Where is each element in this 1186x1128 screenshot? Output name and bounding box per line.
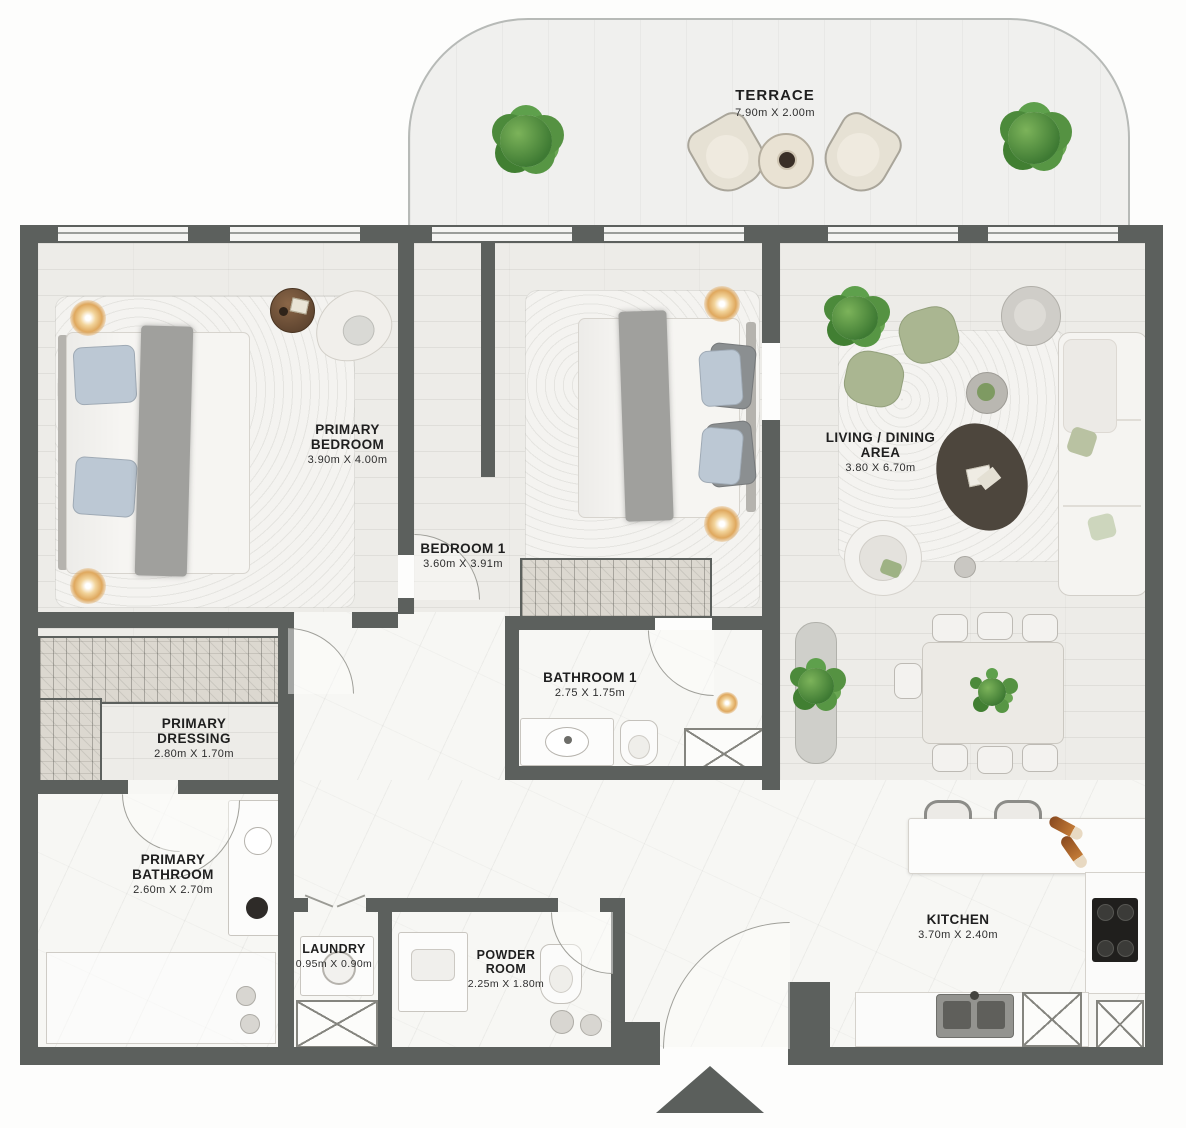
bathroom1-accessory-icon <box>716 692 738 714</box>
primary-bathroom-stool-1 <box>236 986 256 1006</box>
wall-bathroom1-top-right <box>712 616 762 630</box>
kitchen-bar-stool <box>994 800 1042 819</box>
wall-primary-bottom-right <box>352 612 398 628</box>
kitchen-appliance-box <box>1096 1000 1144 1049</box>
bedroom1-lamp-top-icon <box>704 286 740 322</box>
primary-dressing-dims: 2.80m X 1.70m <box>138 748 250 760</box>
window <box>58 225 188 243</box>
wall-primary-bottom-left <box>38 612 288 628</box>
living-dining-dims: 3.80 X 6.70m <box>818 462 943 474</box>
living-plant-icon <box>832 296 878 340</box>
kitchen-bar-counter <box>908 818 1147 874</box>
window <box>604 225 744 243</box>
primary-bed-pillow-bottom <box>72 456 138 518</box>
bathroom-1-dims: 2.75 X 1.75m <box>525 687 655 699</box>
bedroom1-lamp-bottom-icon <box>704 506 740 542</box>
living-armchair <box>844 520 922 596</box>
wall-dressing-bottom-left <box>38 780 128 794</box>
wall-right <box>1145 225 1163 1065</box>
bathroom1-toilet <box>620 720 658 766</box>
primary-bed-runner <box>135 325 194 576</box>
terrace-plant-right-icon <box>1008 112 1060 164</box>
primary-lamp-top-icon <box>70 300 106 336</box>
wall-bathroom1-bottom <box>505 766 762 780</box>
primary-bathroom-name: PRIMARY BATHROOM <box>114 852 232 882</box>
dining-chair <box>932 614 968 642</box>
kitchen-appliance-box <box>1022 992 1082 1047</box>
kitchen-sink <box>936 994 1014 1038</box>
wall-primary-right-upper <box>398 243 414 555</box>
bedroom1-wardrobe <box>520 558 712 618</box>
wall-primary-right-lower <box>398 598 414 614</box>
dining-chair <box>977 612 1013 640</box>
dining-chair <box>1022 614 1058 642</box>
bedroom1-bed-runner <box>618 310 673 522</box>
floor-corridor <box>294 612 505 782</box>
wall-bottom-right <box>788 1047 1163 1065</box>
kitchen-hob <box>1092 898 1138 962</box>
powder-rug-1 <box>550 1010 574 1034</box>
dining-chair <box>1022 744 1058 772</box>
dressing-wardrobe-left <box>38 698 102 788</box>
entrance-arrow-icon <box>656 1066 764 1113</box>
powder-room-name: POWDER ROOM <box>456 948 556 976</box>
wall-living-left-lower <box>762 420 780 790</box>
wall-living-left-upper <box>762 243 780 343</box>
room-label-primary-bathroom: PRIMARY BATHROOM 2.60m X 2.70m <box>114 852 232 896</box>
room-label-bedroom-1: BEDROOM 1 3.60m X 3.91m <box>403 541 523 570</box>
living-sofa <box>1058 332 1148 596</box>
bedroom1-pillow-bottom <box>698 426 745 485</box>
kitchen-dims: 3.70m X 2.40m <box>898 929 1018 941</box>
terrace-plant-left-icon <box>500 115 552 167</box>
room-label-living-dining: LIVING / DINING AREA 3.80 X 6.70m <box>818 430 943 474</box>
primary-dressing-name: PRIMARY DRESSING <box>138 716 250 746</box>
primary-bedroom-name: PRIMARY BEDROOM <box>295 422 400 452</box>
primary-side-table <box>270 288 315 333</box>
wall-bathroom1-top-left <box>505 616 655 630</box>
laundry-name: LAUNDRY <box>286 942 382 956</box>
window <box>230 225 360 243</box>
living-round-chair <box>1001 286 1061 346</box>
kitchen-bar-stool <box>924 800 972 819</box>
wall-laundry-top-corner <box>292 898 308 912</box>
living-side-table <box>966 372 1008 414</box>
wall-powder-right <box>611 898 625 1047</box>
wall-bathroom1-left <box>505 616 519 780</box>
laundry-dims: 0.95m X 0.90m <box>286 958 382 970</box>
wall-bedroom1-left <box>481 243 495 477</box>
room-label-laundry: LAUNDRY 0.95m X 0.90m <box>286 942 382 970</box>
bathroom-1-name: BATHROOM 1 <box>525 670 655 685</box>
window <box>988 225 1118 243</box>
floor-plan: TERRACE 7.90m X 2.00m PRIMARY BEDROOM 3.… <box>0 0 1186 1128</box>
wall-laundry-powder-top <box>366 898 558 912</box>
bedroom1-pillow-top <box>698 349 744 408</box>
dining-plant-icon <box>978 678 1006 706</box>
dining-chair <box>894 663 922 699</box>
dining-chair <box>977 746 1013 774</box>
wall-left <box>20 225 38 1065</box>
primary-bedroom-dims: 3.90m X 4.00m <box>295 454 400 466</box>
terrace-table <box>758 133 814 189</box>
terrace-dims: 7.90m X 2.00m <box>690 107 860 119</box>
dressing-wardrobe-top <box>38 636 292 704</box>
wall-dressing-bottom-right <box>178 780 294 794</box>
powder-room-dims: 2.25m X 1.80m <box>456 978 556 990</box>
bedroom-1-dims: 3.60m X 3.91m <box>403 558 523 570</box>
wall-primary-bathroom-right <box>278 780 294 1047</box>
living-dining-name: LIVING / DINING AREA <box>818 430 943 460</box>
room-label-kitchen: KITCHEN 3.70m X 2.40m <box>898 912 1018 941</box>
room-label-powder-room: POWDER ROOM 2.25m X 1.80m <box>456 948 556 990</box>
primary-bathroom-dims: 2.60m X 2.70m <box>114 884 232 896</box>
dining-chair <box>932 744 968 772</box>
primary-lamp-bottom-icon <box>70 568 106 604</box>
corridor-plant-icon <box>798 668 834 704</box>
room-label-primary-bedroom: PRIMARY BEDROOM 3.90m X 4.00m <box>295 422 400 466</box>
window <box>432 225 572 243</box>
wall-laundry-right <box>378 898 392 1047</box>
room-label-bathroom-1: BATHROOM 1 2.75 X 1.75m <box>525 670 655 699</box>
living-floor-lamp-icon <box>954 556 976 578</box>
terrace-name: TERRACE <box>690 88 860 105</box>
wall-kitchen-stub <box>788 982 830 1047</box>
wall-bottom-left <box>20 1047 660 1065</box>
room-label-primary-dressing: PRIMARY DRESSING 2.80m X 1.70m <box>138 716 250 760</box>
primary-bed-pillow-top <box>73 344 138 405</box>
bedroom-1-name: BEDROOM 1 <box>403 541 523 556</box>
bathroom1-vanity <box>520 718 614 766</box>
window <box>828 225 958 243</box>
primary-bathroom-stool-2 <box>240 1014 260 1034</box>
laundry-cabinet-box <box>296 1000 378 1048</box>
kitchen-name: KITCHEN <box>898 912 1018 927</box>
powder-rug-2 <box>580 1014 602 1036</box>
room-label-terrace: TERRACE 7.90m X 2.00m <box>690 88 860 119</box>
wall-entrance-stub-left <box>622 1022 660 1047</box>
